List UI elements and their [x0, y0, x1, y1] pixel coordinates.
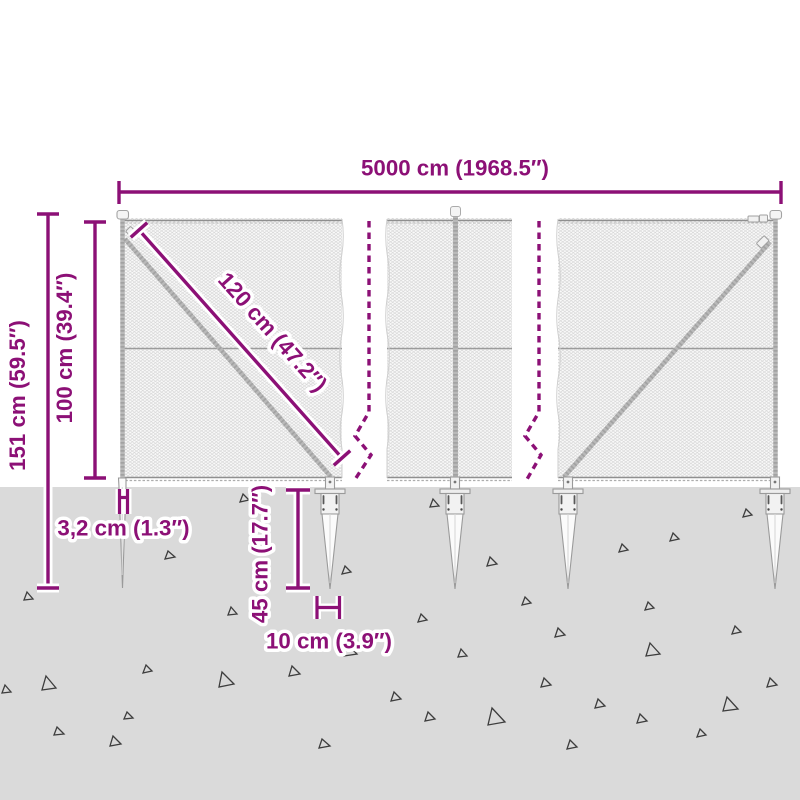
svg-text:3,2 cm (1.3″): 3,2 cm (1.3″)	[57, 516, 189, 541]
svg-text:10 cm (3.9″): 10 cm (3.9″)	[266, 629, 392, 654]
svg-text:5000 cm (1968.5″): 5000 cm (1968.5″)	[361, 156, 549, 181]
svg-text:100 cm (39.4″): 100 cm (39.4″)	[52, 273, 77, 424]
svg-text:45 cm (17.7″): 45 cm (17.7″)	[248, 485, 273, 623]
svg-text:151 cm (59.5″): 151 cm (59.5″)	[5, 320, 30, 471]
